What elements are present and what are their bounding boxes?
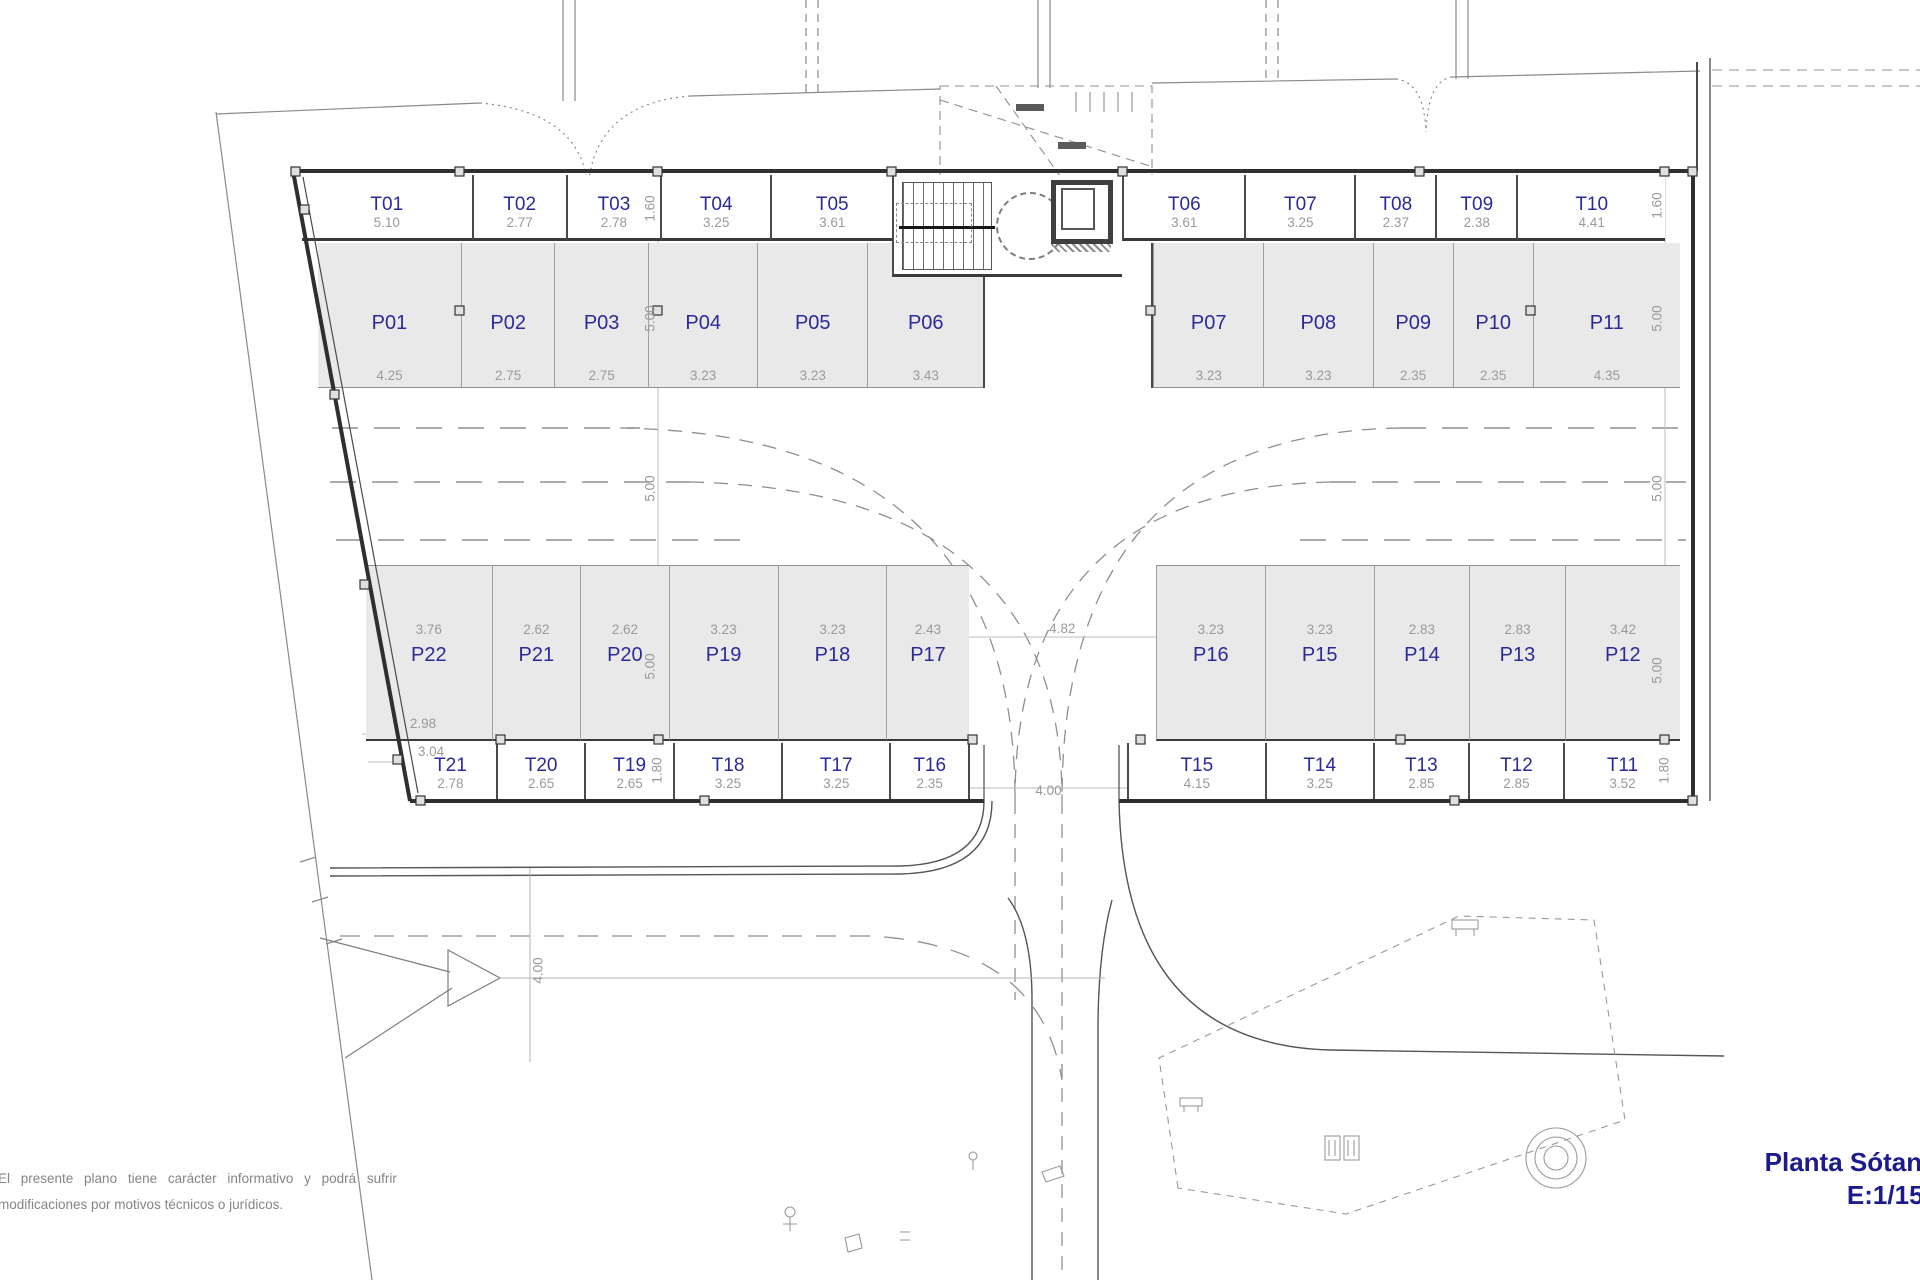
plan-scale: E:1/150 [1742, 1179, 1920, 1212]
storage-unit-label: T06 [1168, 195, 1201, 215]
storage-unit-width: 3.25 [823, 776, 849, 792]
parking-space: P08 3.23 [1263, 243, 1373, 388]
storage-unit: T06 3.61 [1122, 175, 1244, 241]
parking-space-label: P01 [372, 313, 408, 334]
parking-space-width: 3.42 [1610, 622, 1636, 638]
parking-space-width: 3.76 [416, 622, 442, 638]
storage-unit: T14 3.25 [1265, 743, 1373, 801]
parking-space-width: 2.35 [1374, 368, 1453, 384]
storage-unit-label: T15 [1180, 756, 1213, 776]
parking-space: P07 3.23 [1153, 243, 1263, 388]
storage-unit-width: 4.15 [1184, 776, 1210, 792]
storage-unit-label: T12 [1500, 756, 1533, 776]
storage-unit-width: 5.10 [374, 215, 400, 231]
parking-space-width: 2.75 [555, 368, 647, 384]
storage-unit: T09 2.38 [1435, 175, 1516, 241]
storage-unit-label: T14 [1303, 756, 1336, 776]
parking-space: P01 4.25 [318, 243, 461, 388]
storage-unit-label: T02 [503, 195, 536, 215]
plan-title: Planta Sótano [1742, 1146, 1920, 1179]
parking-space-label: P07 [1191, 313, 1227, 334]
parking-space-width: 2.62 [612, 622, 638, 638]
storage-unit-label: T07 [1284, 195, 1317, 215]
parking-space-label: P02 [490, 313, 526, 334]
storage-unit-width: 2.78 [437, 776, 463, 792]
dim-driveway-width-left: 5.00 [643, 459, 658, 519]
storage-row-bottom: T21 2.78 T20 2.65 T19 2.65 T18 3.25 T17 … [405, 743, 1680, 801]
turning-curves [620, 428, 1400, 1280]
storage-unit-width: 2.85 [1408, 776, 1434, 792]
parking-space-width: 3.23 [1154, 368, 1263, 384]
parking-space: P03 2.75 [554, 243, 647, 388]
parking-space: P02 2.75 [461, 243, 554, 388]
parking-space: 3.23 P16 [1156, 565, 1265, 741]
parking-space-width: 2.62 [523, 622, 549, 638]
storage-unit-width: 3.25 [715, 776, 741, 792]
parking-space-width: 3.23 [1198, 622, 1224, 638]
storage-unit-label: T19 [613, 756, 646, 776]
storage-unit-width: 3.61 [1171, 215, 1197, 231]
storage-unit-width: 2.65 [617, 776, 643, 792]
door-arc-right [1396, 77, 1452, 132]
storage-unit-width: 3.52 [1609, 776, 1635, 792]
parking-space: 2.43 P17 [886, 565, 968, 741]
storage-unit-width: 2.38 [1464, 215, 1490, 231]
storage-unit-label: T16 [913, 756, 946, 776]
dim-parking-depth-left2: 5.00 [643, 637, 658, 697]
parking-space: 3.23 P18 [778, 565, 887, 741]
parking-space-label: P15 [1302, 645, 1338, 666]
parking-space: P10 2.35 [1453, 243, 1533, 388]
parking-space: 2.62 P21 [492, 565, 581, 741]
parking-space-width: 2.35 [1454, 368, 1533, 384]
dim-parking-depth-right: 5.00 [1650, 289, 1665, 349]
parking-space-width: 2.43 [915, 622, 941, 638]
storage-unit: T15 4.15 [1127, 743, 1265, 801]
parking-space-width: 2.75 [462, 368, 554, 384]
garden-decoration [783, 916, 1625, 1252]
storage-unit-width: 2.35 [917, 776, 943, 792]
title-block: Planta Sótano E:1/150 [1742, 1146, 1920, 1211]
parking-space-label: P03 [584, 313, 620, 334]
storage-unit: T16 2.35 [889, 743, 968, 801]
ramp-corridor: 4.00 [968, 743, 1127, 801]
parking-space-label: P16 [1193, 645, 1229, 666]
storage-unit-width: 3.25 [1307, 776, 1333, 792]
storage-unit-label: T04 [700, 195, 733, 215]
storage-unit-width: 2.85 [1503, 776, 1529, 792]
parking-space-label: P04 [685, 313, 721, 334]
dim-storage-depth-right2: 1.80 [1657, 741, 1672, 801]
storage-unit-width: 2.78 [601, 215, 627, 231]
parking-space-width: 3.23 [710, 622, 736, 638]
parking-space-label: P11 [1590, 313, 1624, 334]
storage-unit-width: 2.65 [528, 776, 554, 792]
storage-unit-label: T03 [598, 195, 631, 215]
storage-unit: T04 3.25 [660, 175, 770, 241]
disclaimer: El presente plano tiene carácter informa… [0, 1166, 370, 1219]
parking-space: 2.83 P13 [1469, 565, 1565, 741]
storage-unit-width: 3.25 [1287, 215, 1313, 231]
parking-row-bottom: 3.76 P22 2.62 P21 2.62 P20 3.23 P19 3.23… [366, 565, 1680, 741]
storage-unit-label: T13 [1405, 756, 1438, 776]
dim-parking-depth-right2: 5.00 [1650, 641, 1665, 701]
parking-space-label: P17 [910, 645, 946, 666]
parking-space: P09 2.35 [1373, 243, 1453, 388]
parking-space: 3.23 P19 [669, 565, 778, 741]
storage-unit: T13 2.85 [1373, 743, 1468, 801]
parking-space: 2.83 P14 [1374, 565, 1470, 741]
access-road [330, 801, 1724, 1280]
storage-unit: T20 2.65 [496, 743, 585, 801]
storage-unit-label: T17 [820, 756, 853, 776]
parking-space-width: 3.43 [868, 368, 983, 384]
storage-unit-width: 4.41 [1579, 215, 1605, 231]
driveway-lanes [330, 428, 1686, 540]
parking-space-width: 4.25 [318, 368, 461, 384]
architectural-plan: T01 5.10 T02 2.77 T03 2.78 T04 3.25 T05 … [0, 0, 1920, 1280]
storage-unit-width: 3.25 [703, 215, 729, 231]
parking-space: 3.76 P22 [366, 565, 492, 741]
parking-space-width: 3.23 [1307, 622, 1333, 638]
parking-space-label: P10 [1475, 313, 1511, 334]
storage-unit: T07 3.25 [1244, 175, 1354, 241]
parking-space-label: P09 [1395, 313, 1431, 334]
storage-unit: T01 5.10 [302, 175, 472, 241]
parking-space-label: P22 [411, 645, 447, 666]
ramp-opening: 4.82 [969, 565, 1156, 741]
storage-unit-width: 2.37 [1383, 215, 1409, 231]
parking-space-label: P20 [607, 645, 643, 666]
ramp-arrow [320, 868, 1105, 1062]
storage-unit-label: T05 [816, 195, 849, 215]
dim-driveway-width-right: 5.00 [1650, 459, 1665, 519]
storage-unit-label: T10 [1575, 195, 1608, 215]
disclaimer-line2: modificaciones por motivos técnicos o ju… [0, 1192, 370, 1218]
storage-unit-label: T09 [1460, 195, 1493, 215]
storage-row-top: T01 5.10 T02 2.77 T03 2.78 T04 3.25 T05 … [302, 175, 1665, 241]
storage-unit: T12 2.85 [1468, 743, 1563, 801]
storage-unit: T17 3.25 [781, 743, 889, 801]
parking-space-width: 4.35 [1534, 368, 1680, 384]
parking-space-label: P13 [1500, 645, 1536, 666]
dim-storage-depth-left: 1.60 [643, 179, 658, 239]
parking-space-label: P08 [1301, 313, 1337, 334]
property-boundary-top [216, 71, 1700, 114]
storage-unit: T18 3.25 [673, 743, 781, 801]
parking-space-width: 2.83 [1409, 622, 1435, 638]
parking-space-label: P19 [706, 645, 742, 666]
parking-space-label: P05 [795, 313, 831, 334]
disclaimer-line1: El presente plano tiene carácter informa… [0, 1166, 370, 1192]
dim-parking-depth-left: 5.00 [643, 289, 658, 349]
parking-space-label: P12 [1605, 645, 1641, 666]
parking-space-width: 2.83 [1504, 622, 1530, 638]
parking-space-label: P21 [519, 645, 555, 666]
ramp-corridor-width: 4.00 [1035, 783, 1061, 799]
parking-space-width: 3.23 [1264, 368, 1373, 384]
storage-unit-label: T08 [1379, 195, 1412, 215]
dim-p22-sub-a: 2.98 [388, 716, 458, 731]
parking-space: 3.23 P15 [1265, 565, 1374, 741]
storage-unit: T10 4.41 [1516, 175, 1665, 241]
upper-level-ghost [940, 86, 1152, 176]
dim-storage-depth-left2: 1.80 [650, 741, 665, 801]
storage-unit-width: 3.61 [819, 215, 845, 231]
dim-storage-depth-right: 1.60 [1650, 176, 1665, 236]
storage-unit: T05 3.61 [770, 175, 892, 241]
storage-unit-label: T11 [1607, 756, 1638, 776]
storage-unit: T08 2.37 [1354, 175, 1435, 241]
parking-space-label: P18 [815, 645, 851, 666]
storage-unit-width: 2.77 [507, 215, 533, 231]
storage-unit: T02 2.77 [472, 175, 566, 241]
storage-unit-label: T20 [525, 756, 558, 776]
parking-space: P04 3.23 [648, 243, 758, 388]
parking-space-width: 3.23 [758, 368, 867, 384]
elevator-icon [1051, 180, 1113, 244]
parking-space-label: P06 [908, 313, 944, 334]
ramp-opening-width: 4.82 [1049, 621, 1075, 637]
stair-landing [896, 203, 972, 243]
stair-core [892, 175, 1122, 277]
dim-p22-sub-b: 3.04 [396, 744, 466, 759]
dim-road-width: 4.00 [531, 941, 546, 1001]
storage-unit-label: T18 [712, 756, 745, 776]
parking-space: P05 3.23 [757, 243, 867, 388]
parking-space-width: 3.23 [649, 368, 758, 384]
storage-unit-label: T01 [370, 195, 403, 215]
parking-space-label: P14 [1404, 645, 1440, 666]
parking-space-width: 3.23 [819, 622, 845, 638]
